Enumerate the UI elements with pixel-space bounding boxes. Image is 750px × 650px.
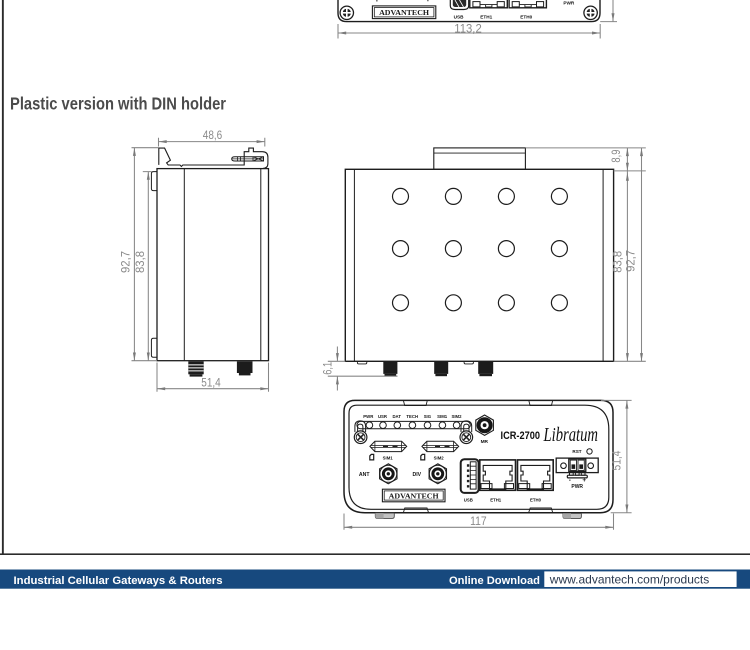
svg-text:92,7: 92,7: [625, 250, 638, 272]
svg-text:ETH0: ETH0: [530, 498, 542, 503]
svg-text:83,8: 83,8: [611, 251, 624, 273]
svg-text:ANT: ANT: [359, 472, 370, 478]
svg-text:MR: MR: [481, 439, 489, 445]
svg-text:TECH: TECH: [406, 414, 418, 419]
svg-text:USR: USR: [378, 414, 388, 419]
svg-text:SIM2: SIM2: [451, 414, 462, 419]
svg-text:RST: RST: [572, 449, 581, 454]
svg-text:PWR: PWR: [563, 0, 575, 5]
svg-text:83,8: 83,8: [134, 251, 147, 273]
svg-text:ETH1: ETH1: [480, 14, 492, 19]
svg-text:51,4: 51,4: [611, 450, 624, 470]
svg-text:92,7: 92,7: [119, 251, 132, 273]
svg-text:www.advantech.com/products: www.advantech.com/products: [549, 573, 709, 587]
svg-text:Industrial Cellular Gateways &: Industrial Cellular Gateways & Routers: [14, 575, 223, 587]
svg-text:ETH1: ETH1: [490, 498, 502, 503]
svg-text:117: 117: [470, 515, 487, 528]
svg-text:USB: USB: [454, 14, 465, 19]
svg-text:SIM1: SIM1: [383, 455, 394, 460]
svg-text:51,4: 51,4: [201, 377, 221, 390]
svg-text:PWR: PWR: [571, 484, 583, 490]
svg-text:Libratum: Libratum: [543, 424, 598, 446]
svg-text:SIM1: SIM1: [437, 414, 448, 419]
svg-text:48,6: 48,6: [203, 129, 223, 142]
svg-text:Online Download: Online Download: [449, 575, 540, 587]
svg-text:ETH0: ETH0: [520, 14, 532, 19]
svg-text:DIV: DIV: [412, 472, 421, 478]
svg-text:113,2: 113,2: [454, 21, 482, 35]
svg-text:ADVANTECH: ADVANTECH: [389, 492, 439, 501]
svg-text:SIG: SIG: [424, 414, 432, 419]
svg-text:SIM2: SIM2: [434, 455, 445, 460]
svg-text:DAT: DAT: [392, 414, 401, 419]
svg-text:PWR: PWR: [363, 414, 374, 419]
svg-text:ADVANTECH: ADVANTECH: [379, 8, 429, 17]
svg-text:6,1: 6,1: [321, 362, 334, 375]
svg-text:8,9: 8,9: [610, 150, 623, 163]
svg-text:ICR-2700: ICR-2700: [501, 430, 541, 442]
svg-text:Plastic version with DIN holde: Plastic version with DIN holder: [10, 94, 226, 114]
svg-text:USB: USB: [464, 498, 473, 503]
